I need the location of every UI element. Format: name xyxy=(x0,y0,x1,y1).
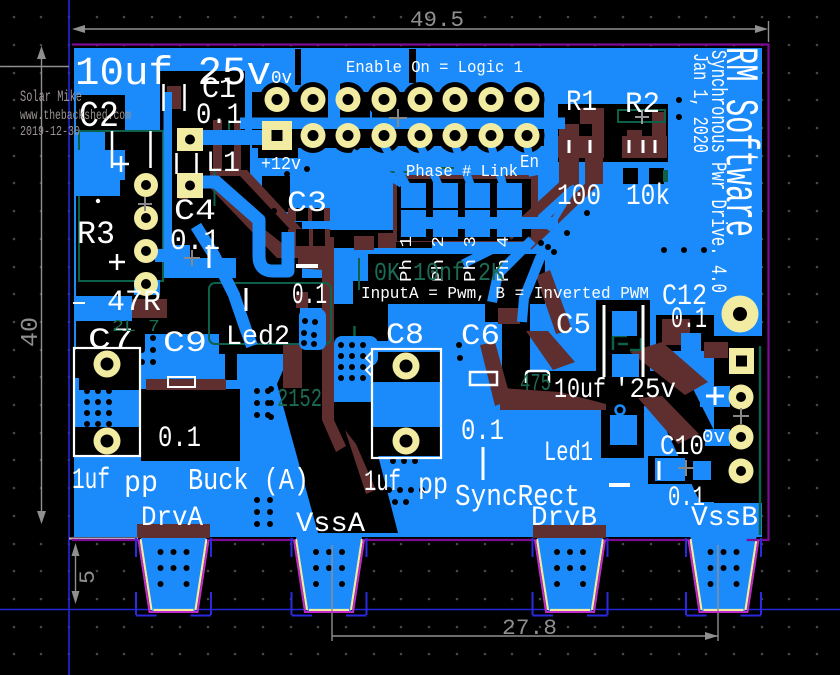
svg-text:C5: C5 xyxy=(556,309,591,343)
svg-text:Led1: Led1 xyxy=(544,438,593,469)
svg-text:0v: 0v xyxy=(702,428,725,448)
svg-text:L1: L1 xyxy=(206,147,240,181)
svg-text:C4: C4 xyxy=(174,195,216,229)
svg-text:0.1: 0.1 xyxy=(461,415,504,449)
svg-text:1uf: 1uf xyxy=(72,464,110,498)
svg-text:40: 40 xyxy=(18,317,45,347)
svg-text:R3: R3 xyxy=(77,216,115,253)
svg-text:10uf: 10uf xyxy=(554,375,606,406)
svg-text:10uf 25v: 10uf 25v xyxy=(75,52,271,97)
svg-text:49.5: 49.5 xyxy=(410,8,464,33)
svg-text:2019-12-30: 2019-12-30 xyxy=(20,124,80,140)
svg-text:Led2: Led2 xyxy=(226,322,290,353)
svg-text:0v: 0v xyxy=(271,69,292,89)
svg-text:VssB: VssB xyxy=(691,503,758,534)
svg-text:100: 100 xyxy=(557,180,601,214)
svg-text:C8: C8 xyxy=(386,319,424,353)
svg-text:pp: pp xyxy=(418,469,448,503)
svg-text:C6: C6 xyxy=(461,320,500,354)
svg-text:1uf: 1uf xyxy=(364,466,401,500)
svg-text:47R: 47R xyxy=(107,286,161,320)
svg-text:Enable On = Logic 1: Enable On = Logic 1 xyxy=(346,59,523,78)
svg-text:En: En xyxy=(520,153,539,173)
svg-text:R2: R2 xyxy=(625,88,660,122)
svg-text:0K 10nf 2K: 0K 10nf 2K xyxy=(374,258,504,288)
svg-text:475: 475 xyxy=(520,371,551,398)
svg-text:0.1: 0.1 xyxy=(671,303,707,337)
svg-text:10k: 10k xyxy=(626,180,670,214)
svg-text:0.1: 0.1 xyxy=(196,99,242,133)
svg-text:pp: pp xyxy=(124,467,158,501)
svg-text:5: 5 xyxy=(76,570,101,584)
svg-text:+12v: +12v xyxy=(261,155,301,175)
svg-text:DrvB: DrvB xyxy=(531,503,597,534)
svg-text:Buck (A): Buck (A) xyxy=(188,464,309,499)
svg-text:Phase # Link: Phase # Link xyxy=(406,163,518,182)
svg-text:2L 7: 2L 7 xyxy=(112,318,160,337)
svg-text:R1: R1 xyxy=(566,86,597,120)
svg-text:0.1: 0.1 xyxy=(170,225,220,259)
svg-text:'25v: '25v xyxy=(614,375,676,406)
svg-text:Solar Mike: Solar Mike xyxy=(20,88,82,106)
svg-text:2152: 2152 xyxy=(277,384,322,414)
svg-text:DrvA: DrvA xyxy=(141,503,203,534)
svg-text:C9: C9 xyxy=(163,327,207,361)
svg-text:VssA: VssA xyxy=(296,509,365,540)
svg-text:0.1: 0.1 xyxy=(292,279,327,313)
svg-text:www.thebackshed.com: www.thebackshed.com xyxy=(20,108,131,124)
svg-text:0.1: 0.1 xyxy=(158,422,201,456)
svg-text:C3: C3 xyxy=(287,187,327,221)
svg-text:C10: C10 xyxy=(660,432,704,463)
svg-text:Jan 1, 2020: Jan 1, 2020 xyxy=(687,53,710,153)
svg-text:27.8: 27.8 xyxy=(502,616,557,641)
